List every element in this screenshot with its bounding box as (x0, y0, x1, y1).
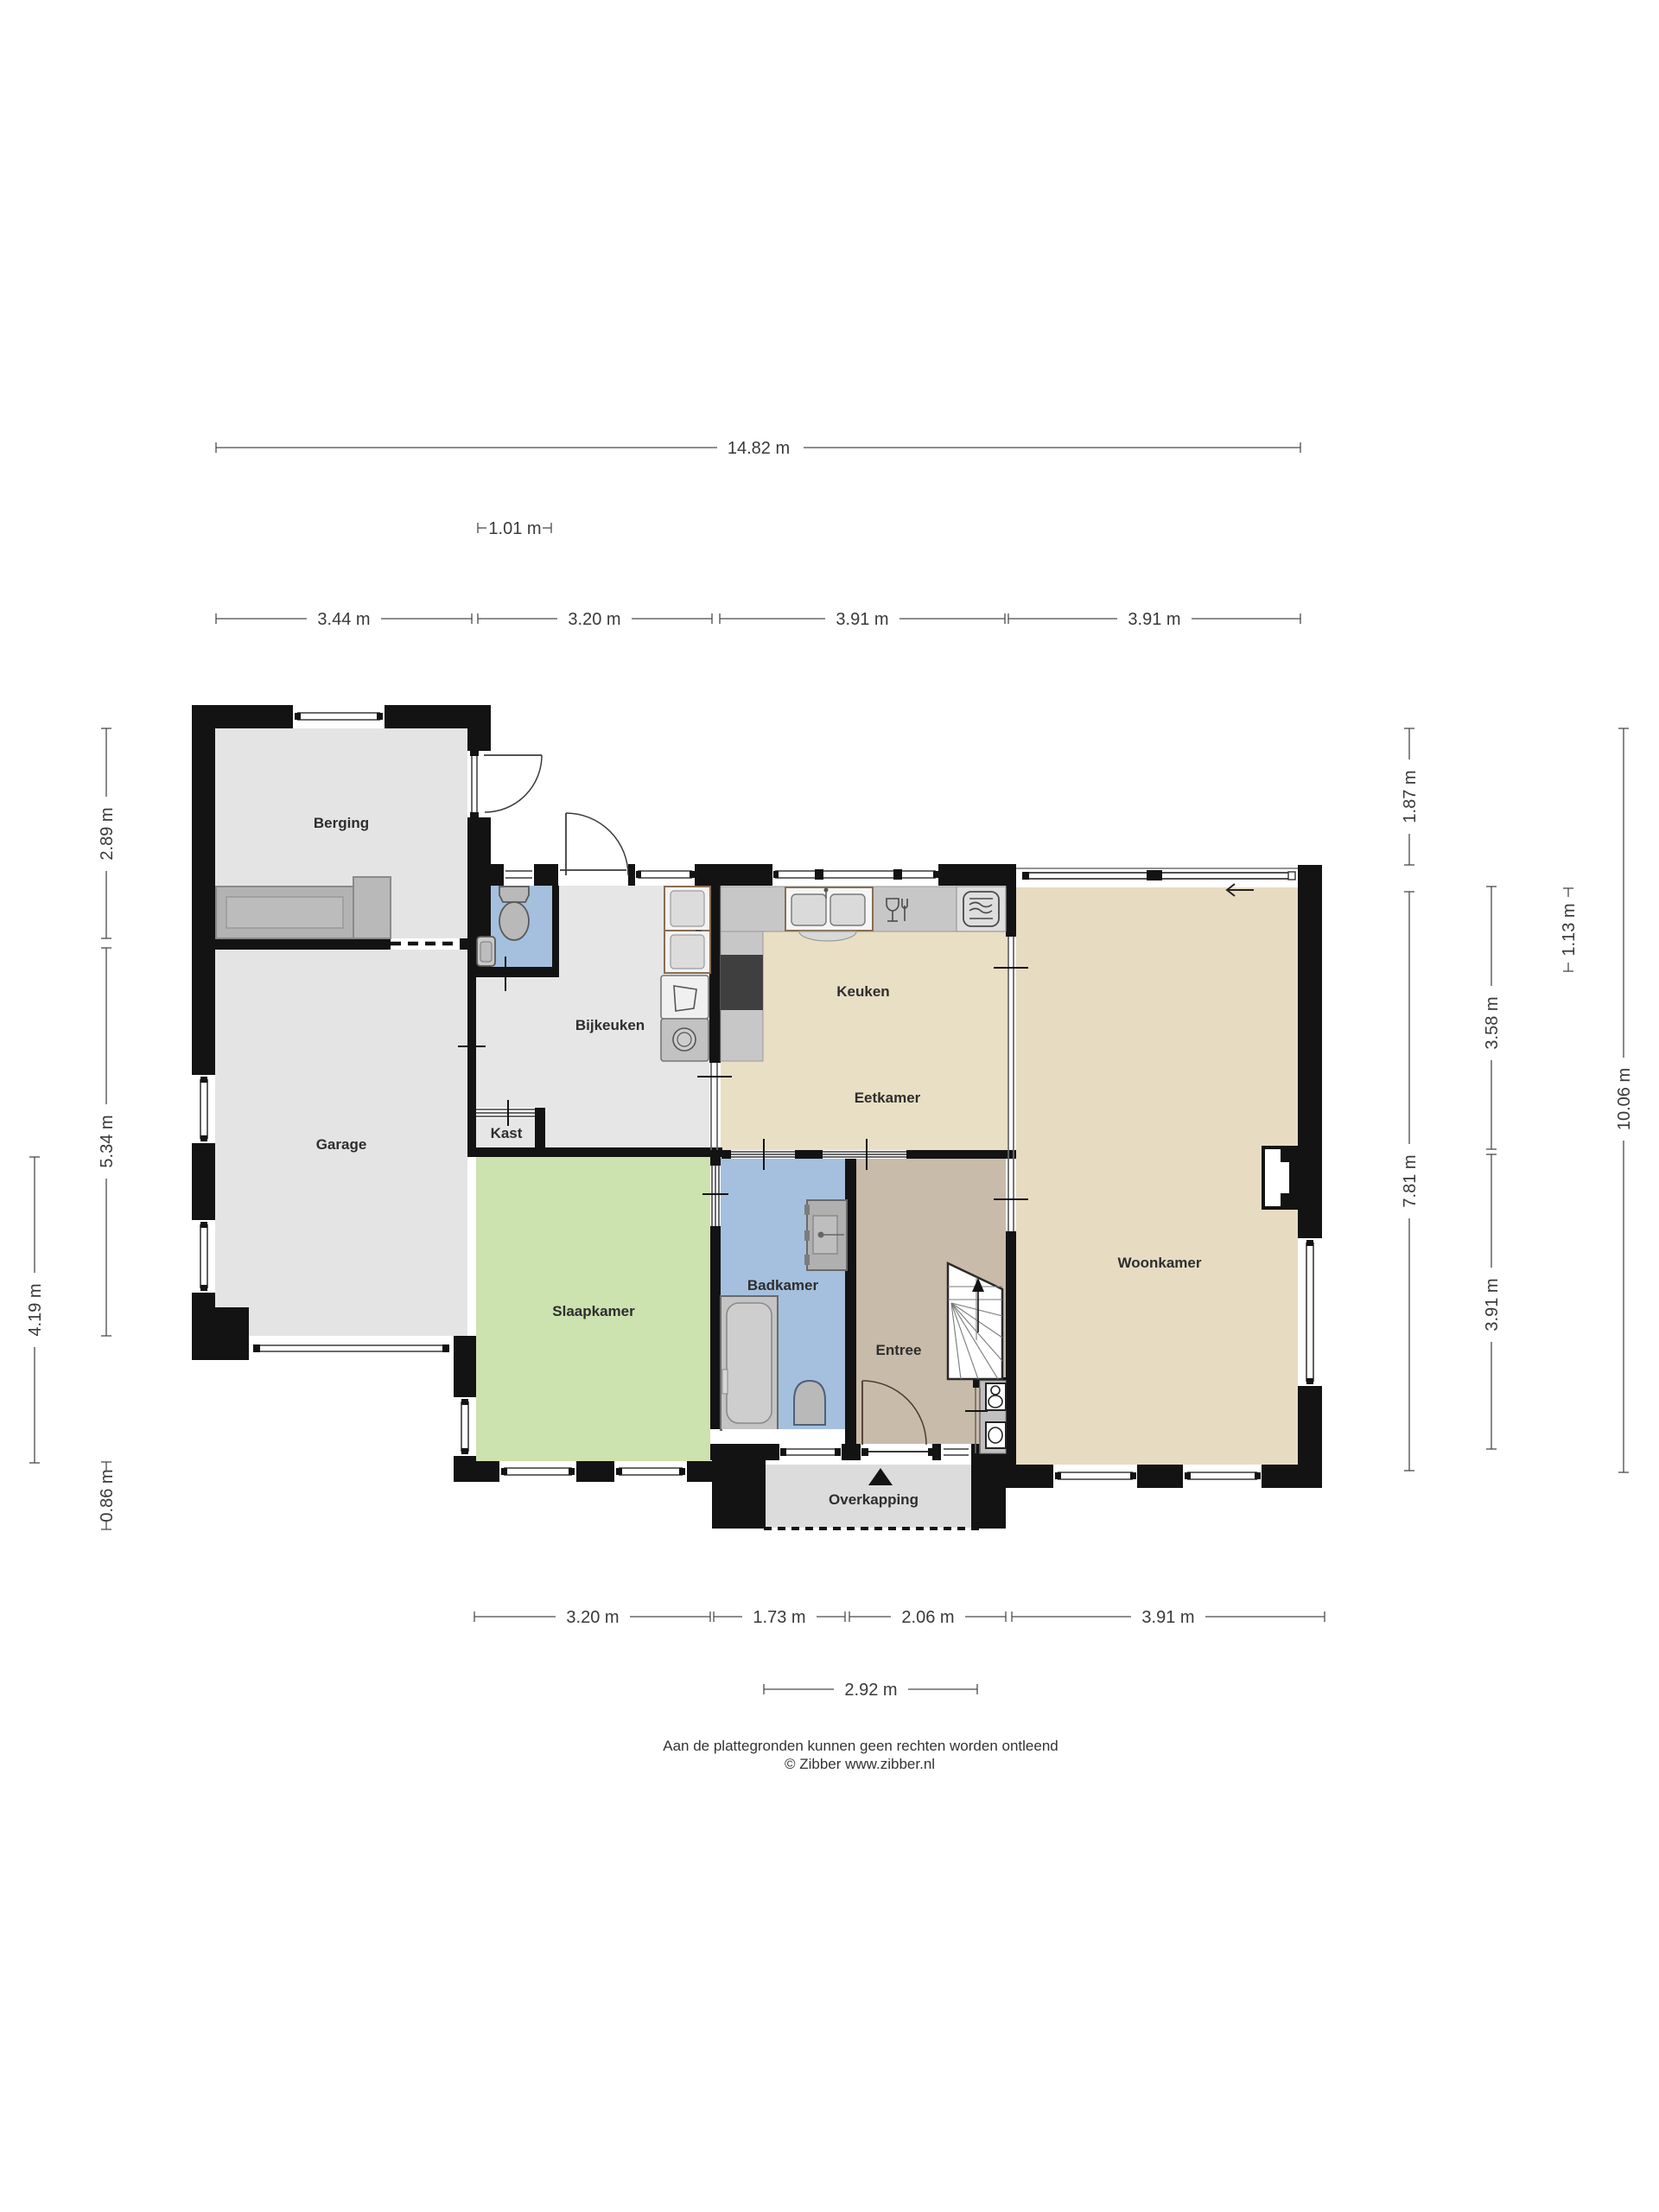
svg-text:3.91 m: 3.91 m (1128, 610, 1180, 629)
svg-text:Overkapping: Overkapping (829, 1491, 918, 1508)
svg-text:3.20 m: 3.20 m (566, 1608, 619, 1627)
svg-text:© Zibber www.zibber.nl: © Zibber www.zibber.nl (785, 1756, 935, 1772)
svg-text:Entree: Entree (876, 1342, 922, 1358)
svg-text:7.81 m: 7.81 m (1401, 1154, 1420, 1207)
svg-text:1.01 m: 1.01 m (488, 519, 541, 538)
svg-text:3.91 m: 3.91 m (1483, 1278, 1502, 1331)
svg-text:1.13 m: 1.13 m (1560, 903, 1579, 956)
svg-text:1.73 m: 1.73 m (753, 1608, 805, 1627)
svg-text:Aan de plattegronden kunnen ge: Aan de plattegronden kunnen geen rechten… (663, 1738, 1058, 1754)
svg-text:4.19 m: 4.19 m (26, 1283, 45, 1336)
svg-text:3.91 m: 3.91 m (836, 610, 888, 629)
svg-text:Kast: Kast (491, 1125, 523, 1141)
svg-text:Keuken: Keuken (836, 983, 889, 1000)
svg-text:0.86 m: 0.86 m (98, 1469, 117, 1522)
svg-text:Eetkamer: Eetkamer (855, 1090, 921, 1106)
svg-text:Bijkeuken: Bijkeuken (575, 1017, 645, 1033)
svg-text:14.82 m: 14.82 m (728, 439, 790, 458)
svg-text:2.06 m: 2.06 m (901, 1608, 954, 1627)
svg-text:Berging: Berging (314, 815, 369, 831)
svg-text:Woonkamer: Woonkamer (1118, 1255, 1202, 1271)
svg-text:Badkamer: Badkamer (747, 1277, 819, 1294)
svg-text:3.58 m: 3.58 m (1483, 996, 1502, 1049)
svg-text:5.34 m: 5.34 m (98, 1115, 117, 1167)
svg-text:2.89 m: 2.89 m (98, 807, 117, 860)
svg-text:3.20 m: 3.20 m (568, 610, 620, 629)
svg-text:Garage: Garage (316, 1136, 367, 1153)
svg-text:1.87 m: 1.87 m (1401, 770, 1420, 823)
svg-text:10.06 m: 10.06 m (1615, 1068, 1634, 1130)
svg-text:Slaapkamer: Slaapkamer (552, 1303, 635, 1319)
svg-text:3.91 m: 3.91 m (1141, 1608, 1194, 1627)
svg-text:2.92 m: 2.92 m (844, 1681, 897, 1700)
svg-text:3.44 m: 3.44 m (317, 610, 370, 629)
